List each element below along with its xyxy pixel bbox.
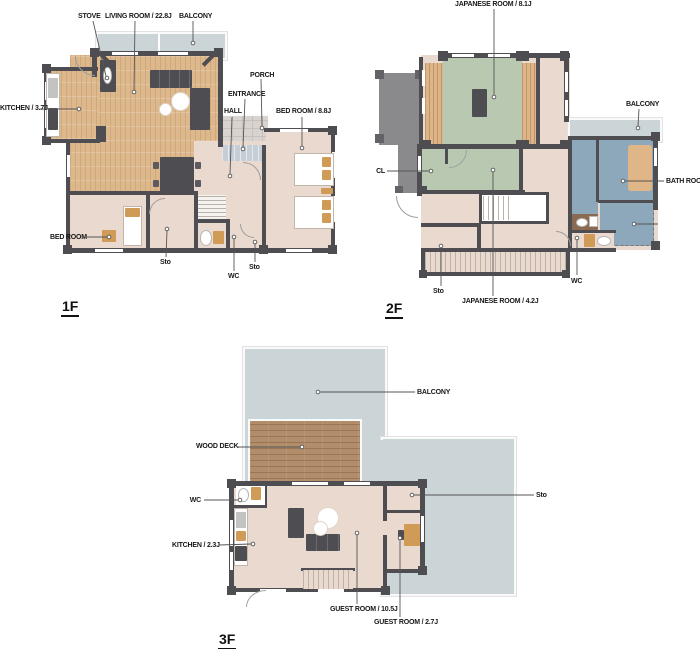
wall-corner — [381, 586, 390, 595]
wall — [570, 230, 616, 233]
wall-post — [516, 51, 529, 61]
desk-chair — [398, 530, 404, 540]
sofa-horizontal — [306, 534, 340, 551]
label-sto-2f: Sto — [433, 288, 444, 295]
wall — [421, 223, 479, 227]
window — [565, 100, 568, 116]
window — [418, 156, 421, 172]
wall — [417, 144, 570, 149]
label-balcony-3f: BALCONY — [417, 389, 450, 396]
window — [230, 520, 233, 546]
wall-corner — [418, 479, 427, 488]
wall — [568, 136, 658, 140]
wall — [445, 148, 448, 164]
label-guest-27: GUEST ROOM / 2.7J — [374, 619, 438, 626]
wall-post — [438, 51, 448, 61]
label-kitchen-3f: KITCHEN / 2.3J — [172, 542, 217, 549]
cooktop — [235, 546, 247, 561]
wall — [385, 510, 423, 513]
window — [422, 98, 425, 114]
floor-title-3f: 3F — [218, 632, 236, 649]
label-wc-3f: WC — [186, 497, 201, 504]
washbasin-sink — [576, 218, 588, 227]
wall-corner — [651, 132, 660, 141]
toilet — [238, 488, 249, 502]
window — [565, 72, 568, 92]
sofa-vertical — [288, 508, 304, 538]
window — [654, 148, 657, 166]
wc-cabinet — [251, 487, 261, 500]
wall — [421, 248, 570, 252]
wc-cabinet — [584, 234, 595, 247]
wall-post — [421, 140, 431, 149]
beanbag-small — [314, 522, 327, 535]
wall — [383, 481, 387, 521]
wall — [417, 190, 525, 194]
japanese-room-42-floor — [421, 148, 521, 192]
label-wood-deck: WOOD DECK — [196, 443, 235, 450]
wall-corner — [227, 479, 236, 488]
wall — [568, 248, 616, 252]
window — [344, 482, 370, 485]
label-cl: CL — [372, 168, 385, 175]
wall — [568, 136, 572, 252]
label-bath-room: BATH ROOM — [666, 178, 700, 185]
stairs-2f-bottom — [425, 252, 566, 272]
wall-corner — [419, 186, 427, 194]
roof-area — [379, 73, 423, 145]
toilet — [597, 236, 611, 246]
wall — [519, 146, 523, 194]
roof-block — [375, 134, 384, 143]
label-wc-2f: WC — [571, 278, 582, 285]
hearth — [472, 89, 487, 117]
engawa-left — [425, 63, 443, 147]
window — [422, 70, 425, 86]
wall — [421, 272, 570, 276]
label-japanese-81: JAPANESE ROOM / 8.1J — [455, 1, 531, 8]
bathtub — [628, 145, 652, 191]
window — [421, 516, 424, 542]
balcony-join-patch — [378, 440, 387, 482]
wall-corner — [227, 586, 236, 595]
desk — [404, 524, 420, 546]
kitchen-sink — [236, 512, 246, 528]
wall-corner — [562, 270, 570, 278]
wall — [536, 57, 540, 149]
wall-post — [516, 140, 529, 149]
kitchen-item — [236, 531, 246, 541]
door-arc — [246, 590, 266, 607]
window — [488, 54, 510, 57]
wall-post — [560, 51, 569, 61]
window — [292, 482, 328, 485]
bath-shelf-area — [572, 140, 598, 216]
roof-block — [375, 70, 384, 79]
label-sto-3f: Sto — [536, 492, 547, 499]
window — [230, 552, 233, 570]
wall — [598, 200, 656, 203]
floorplan-3f: BALCONY WOOD DECK WC KITCHEN / 2.3J GUES… — [0, 330, 700, 649]
floor-title-2f: 2F — [385, 301, 403, 319]
label-guest-105: GUEST ROOM / 10.5J — [330, 606, 398, 613]
wall-corner — [651, 241, 660, 250]
stairs-3f — [303, 570, 353, 589]
label-balcony-2f: BALCONY — [626, 101, 659, 108]
window — [452, 54, 474, 57]
wall-corner — [418, 566, 427, 575]
window — [318, 589, 344, 592]
wall — [596, 140, 599, 202]
label-japanese-42: JAPANESE ROOM / 4.2J — [462, 298, 538, 305]
wall-post — [560, 140, 569, 149]
stairs-2f-steps — [483, 196, 513, 220]
floorplan-2f: JAPANESE ROOM / 8.1J BALCONY CL BATH ROO… — [0, 0, 700, 330]
wall-corner — [419, 270, 427, 278]
wall — [383, 535, 387, 592]
washing-machine — [589, 216, 598, 227]
wood-deck-area — [248, 419, 362, 487]
floorplan-canvas: STOVE LIVING ROOM / 22.8J BALCONY KITCHE… — [0, 0, 700, 649]
